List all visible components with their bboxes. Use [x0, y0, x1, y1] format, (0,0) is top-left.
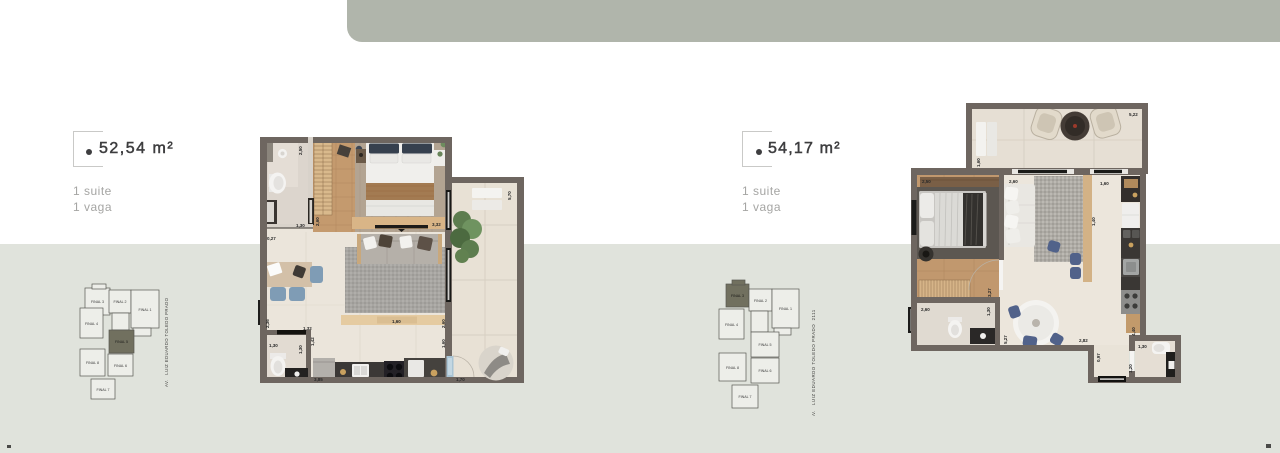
svg-text:FINAL 6: FINAL 6 — [758, 369, 771, 373]
svg-text:5,22: 5,22 — [1129, 112, 1138, 117]
svg-text:0,27: 0,27 — [267, 236, 276, 241]
svg-text:1,42: 1,42 — [310, 337, 315, 346]
svg-text:FINAL 4: FINAL 4 — [85, 322, 98, 326]
svg-text:3,85: 3,85 — [314, 377, 323, 382]
svg-text:2,60: 2,60 — [441, 319, 446, 328]
svg-text:AV. LUIZ EDUARDO TOLEDO PRAD: AV. LUIZ EDUARDO TOLEDO PRADO — [164, 297, 169, 387]
svg-text:1,60: 1,60 — [1100, 181, 1109, 186]
svg-text:FINAL 2: FINAL 2 — [113, 300, 126, 304]
svg-text:1,32: 1,32 — [303, 326, 312, 331]
svg-text:2,82: 2,82 — [1079, 338, 1088, 343]
svg-text:2,36: 2,36 — [265, 319, 270, 328]
svg-text:FINAL 4: FINAL 4 — [725, 323, 738, 327]
svg-text:FINAL 6: FINAL 6 — [114, 364, 127, 368]
svg-text:4,40: 4,40 — [1131, 327, 1136, 336]
svg-text:1,30: 1,30 — [269, 343, 278, 348]
svg-text:FINAL 3: FINAL 3 — [731, 294, 744, 298]
svg-text:FINAL 7: FINAL 7 — [96, 388, 109, 392]
svg-text:2,60: 2,60 — [1009, 179, 1018, 184]
svg-text:FINAL 7: FINAL 7 — [738, 395, 751, 399]
svg-text:FINAL 5: FINAL 5 — [115, 340, 128, 344]
svg-text:FINAL 8: FINAL 8 — [726, 366, 739, 370]
svg-text:3,32: 3,32 — [432, 222, 441, 227]
svg-text:5,27: 5,27 — [1003, 335, 1008, 344]
svg-text:1,60: 1,60 — [976, 158, 981, 167]
svg-text:AV. LUIZ EDUARDO TOLEDO PRAD: AV. LUIZ EDUARDO TOLEDO PRADO 2111 — [811, 309, 816, 416]
svg-text:FINAL 2: FINAL 2 — [754, 299, 767, 303]
svg-text:FINAL 1: FINAL 1 — [779, 307, 792, 311]
svg-text:1,60: 1,60 — [441, 339, 446, 348]
svg-text:5,70: 5,70 — [507, 191, 512, 200]
svg-text:1,30: 1,30 — [296, 223, 305, 228]
svg-text:1,20: 1,20 — [1128, 364, 1133, 373]
svg-text:1,40: 1,40 — [1091, 217, 1096, 226]
svg-text:FINAL 1: FINAL 1 — [138, 308, 151, 312]
svg-text:1,70: 1,70 — [456, 377, 465, 382]
svg-text:2,60: 2,60 — [315, 217, 320, 226]
svg-text:1,30: 1,30 — [298, 345, 303, 354]
svg-text:1,30: 1,30 — [986, 307, 991, 316]
svg-text:1,30: 1,30 — [1138, 344, 1147, 349]
svg-text:2,60: 2,60 — [921, 307, 930, 312]
svg-text:FINAL 3: FINAL 3 — [91, 300, 104, 304]
svg-text:1,60: 1,60 — [392, 319, 401, 324]
svg-text:2,50: 2,50 — [298, 146, 303, 155]
svg-text:3,27: 3,27 — [987, 288, 992, 297]
svg-text:0,97: 0,97 — [1096, 353, 1101, 362]
svg-text:FINAL 8: FINAL 8 — [86, 361, 99, 365]
svg-text:FINAL 5: FINAL 5 — [758, 343, 771, 347]
svg-text:2,50: 2,50 — [922, 179, 931, 184]
